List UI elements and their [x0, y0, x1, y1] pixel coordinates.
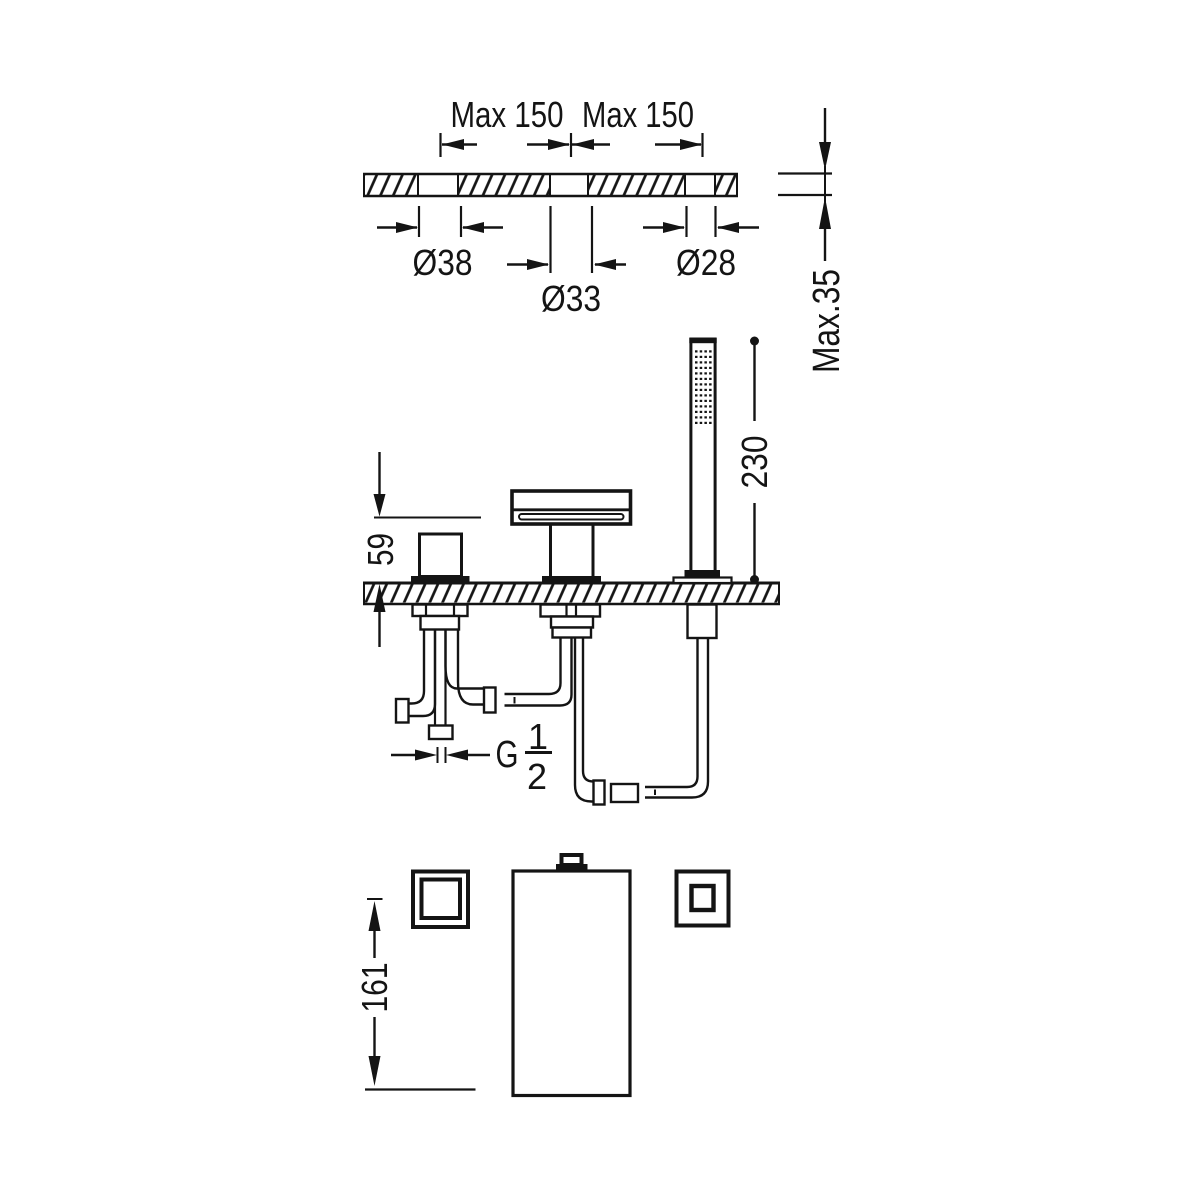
svg-text:230: 230 — [734, 436, 775, 489]
svg-text:G: G — [496, 734, 519, 776]
svg-text:Ø33: Ø33 — [541, 278, 601, 319]
svg-text:Max.35: Max.35 — [806, 269, 848, 373]
svg-text:2: 2 — [527, 756, 547, 797]
svg-text:1: 1 — [528, 716, 548, 757]
svg-text:Max 150: Max 150 — [582, 94, 694, 135]
svg-text:Ø38: Ø38 — [413, 242, 473, 283]
svg-text:Max 150: Max 150 — [451, 94, 564, 135]
svg-text:59: 59 — [360, 533, 401, 566]
svg-text:Ø28: Ø28 — [676, 242, 736, 283]
svg-text:161: 161 — [354, 963, 395, 1013]
